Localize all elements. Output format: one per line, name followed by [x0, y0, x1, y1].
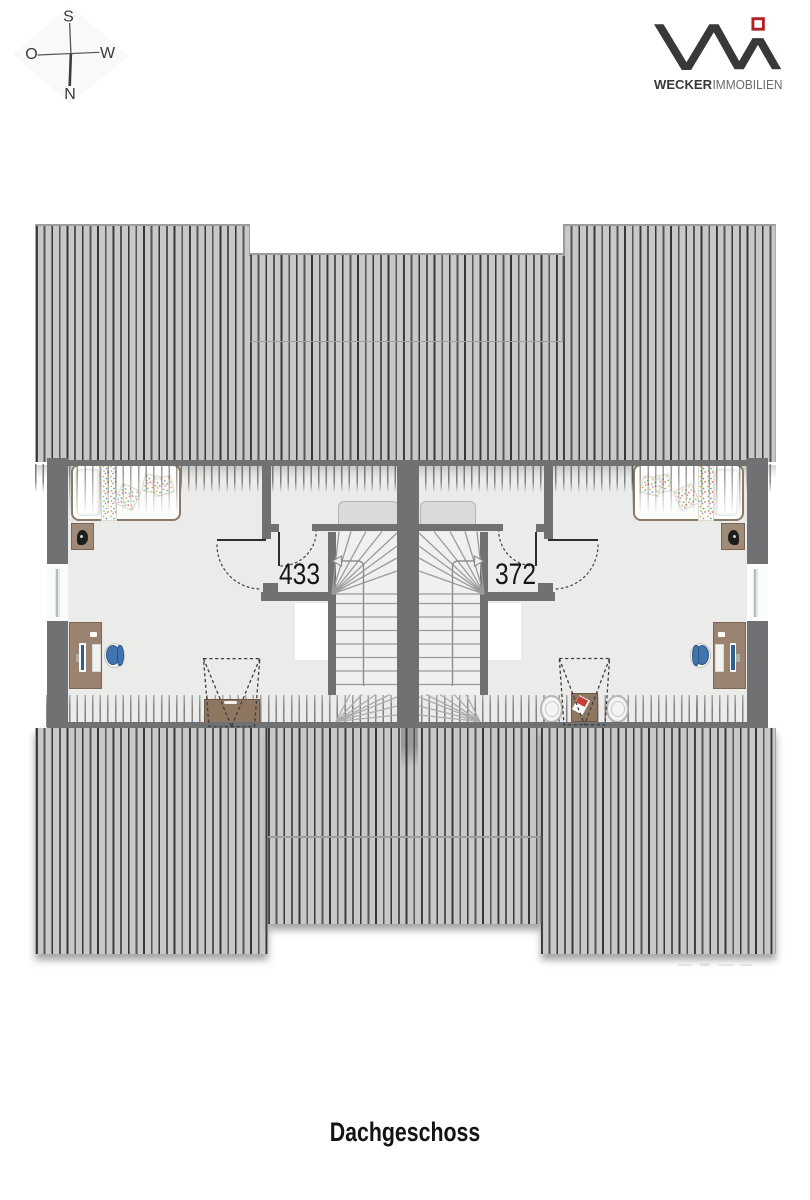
svg-text:W: W	[100, 45, 116, 62]
svg-text:N: N	[64, 86, 76, 103]
svg-text:S: S	[63, 9, 74, 26]
svg-text:O: O	[25, 46, 37, 63]
svg-text:WECKER: WECKER	[654, 77, 713, 92]
svg-text:IMMOBILIEN: IMMOBILIEN	[713, 77, 783, 92]
